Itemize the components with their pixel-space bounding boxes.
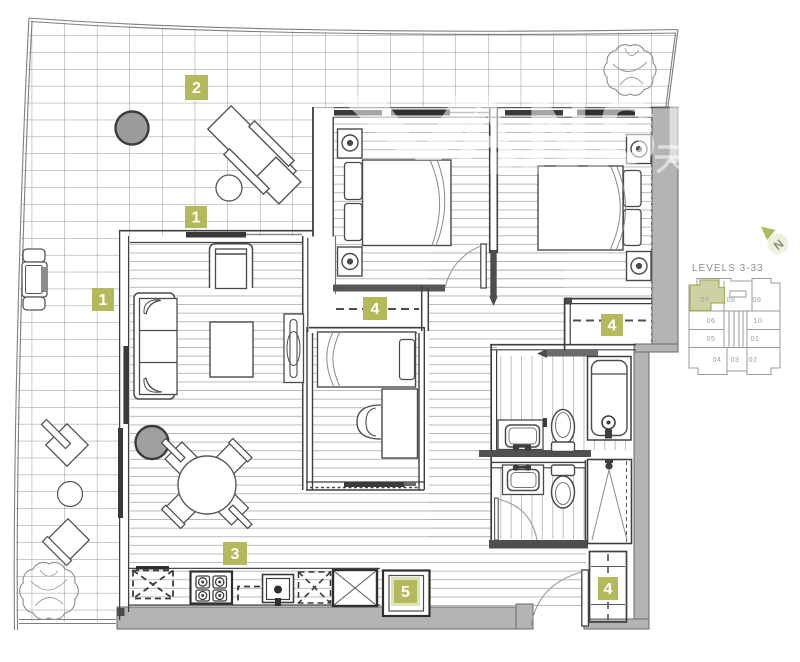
svg-text:1: 1 bbox=[192, 210, 201, 227]
svg-text:04: 04 bbox=[713, 357, 722, 364]
svg-text:10: 10 bbox=[754, 318, 763, 325]
svg-text:02: 02 bbox=[749, 357, 758, 364]
svg-text:08: 08 bbox=[727, 297, 736, 304]
svg-text:06: 06 bbox=[707, 318, 716, 325]
svg-text:09: 09 bbox=[753, 297, 762, 304]
svg-text:2: 2 bbox=[192, 80, 201, 97]
svg-text:03: 03 bbox=[731, 357, 740, 364]
svg-text:07: 07 bbox=[701, 297, 710, 304]
svg-text:LEVELS 3-33: LEVELS 3-33 bbox=[692, 263, 764, 274]
svg-text:4: 4 bbox=[604, 581, 613, 598]
svg-text:5: 5 bbox=[401, 584, 410, 601]
svg-text:4: 4 bbox=[608, 318, 617, 335]
svg-text:1: 1 bbox=[99, 292, 108, 309]
svg-text:05: 05 bbox=[707, 336, 716, 343]
svg-text:4: 4 bbox=[371, 301, 380, 318]
svg-text:3: 3 bbox=[231, 546, 240, 563]
svg-text:01: 01 bbox=[751, 336, 760, 343]
